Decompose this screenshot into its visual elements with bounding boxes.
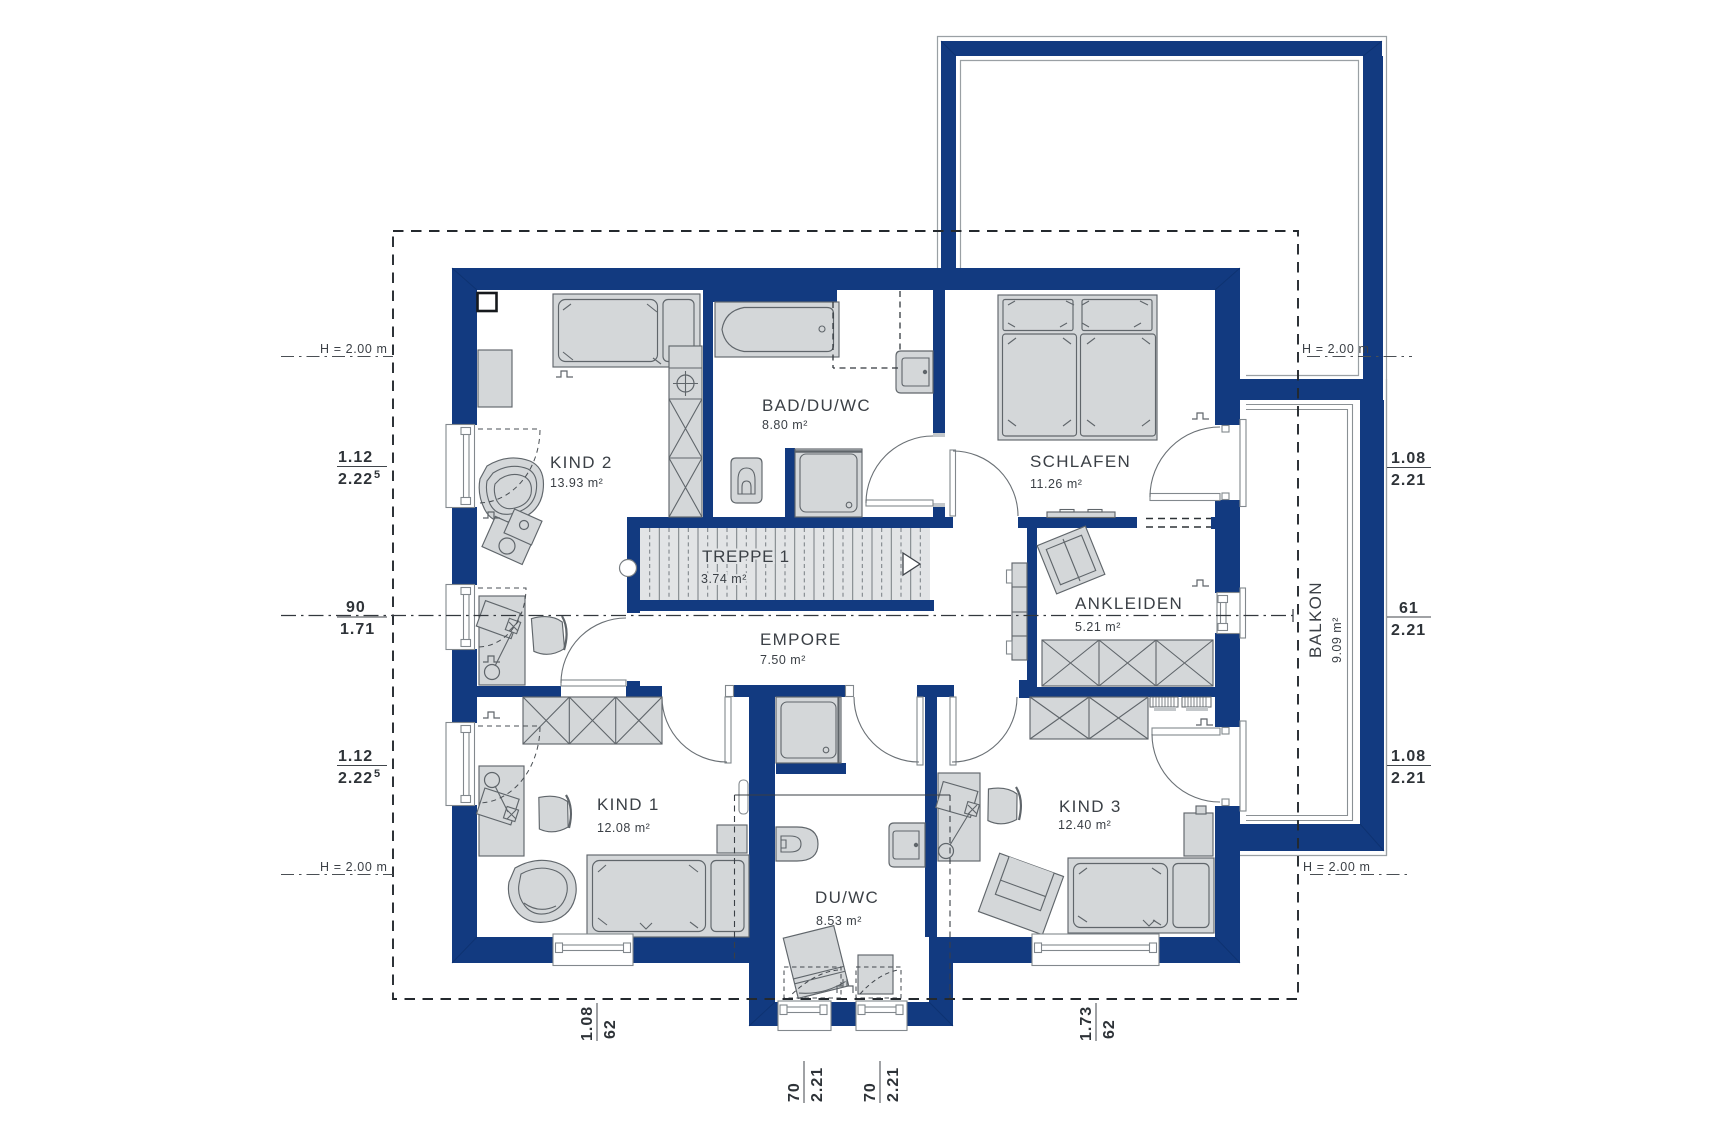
svg-text:13.93 m²: 13.93 m² bbox=[550, 476, 603, 490]
svg-text:KIND 1: KIND 1 bbox=[597, 795, 660, 814]
svg-text:KIND 2: KIND 2 bbox=[550, 453, 613, 472]
svg-text:1.08: 1.08 bbox=[1391, 450, 1426, 467]
svg-text:12.08 m²: 12.08 m² bbox=[597, 821, 650, 835]
svg-text:1.12: 1.12 bbox=[338, 449, 373, 466]
svg-text:70: 70 bbox=[862, 1082, 879, 1102]
svg-text:9.09 m²: 9.09 m² bbox=[1330, 617, 1344, 663]
svg-text:H = 2.00 m: H = 2.00 m bbox=[1303, 860, 1371, 874]
svg-text:H = 2.00 m: H = 2.00 m bbox=[320, 342, 388, 356]
svg-text:61: 61 bbox=[1399, 600, 1419, 617]
svg-text:2.22: 2.22 bbox=[338, 770, 373, 787]
svg-text:2.21: 2.21 bbox=[1391, 770, 1426, 787]
svg-text:8.53 m²: 8.53 m² bbox=[816, 914, 862, 928]
svg-text:5.21 m²: 5.21 m² bbox=[1075, 620, 1121, 634]
svg-text:1.73: 1.73 bbox=[1078, 1006, 1095, 1041]
svg-text:5: 5 bbox=[374, 469, 380, 481]
svg-text:H = 2.00 m: H = 2.00 m bbox=[1302, 342, 1370, 356]
svg-text:3.74 m²: 3.74 m² bbox=[701, 572, 747, 586]
svg-text:2.21: 2.21 bbox=[809, 1067, 826, 1102]
svg-text:1.08: 1.08 bbox=[1391, 748, 1426, 765]
svg-text:2.21: 2.21 bbox=[1391, 472, 1426, 489]
svg-text:SCHLAFEN: SCHLAFEN bbox=[1030, 452, 1131, 471]
svg-text:BALKON: BALKON bbox=[1306, 581, 1325, 658]
svg-text:DU/WC: DU/WC bbox=[815, 888, 879, 907]
svg-text:62: 62 bbox=[602, 1019, 619, 1039]
svg-text:BAD/DU/WC: BAD/DU/WC bbox=[762, 396, 871, 415]
svg-text:2.21: 2.21 bbox=[885, 1067, 902, 1102]
svg-text:KIND 3: KIND 3 bbox=[1059, 797, 1122, 816]
svg-text:H = 2.00 m: H = 2.00 m bbox=[320, 860, 388, 874]
svg-text:5: 5 bbox=[374, 768, 380, 780]
svg-text:11.26 m²: 11.26 m² bbox=[1030, 477, 1082, 491]
svg-text:8.80 m²: 8.80 m² bbox=[762, 418, 808, 432]
svg-text:2.21: 2.21 bbox=[1391, 622, 1426, 639]
svg-text:90: 90 bbox=[346, 599, 366, 616]
svg-text:7.50 m²: 7.50 m² bbox=[760, 653, 806, 667]
svg-text:70: 70 bbox=[786, 1082, 803, 1102]
svg-text:TREPPE 1: TREPPE 1 bbox=[702, 547, 790, 566]
svg-text:2.22: 2.22 bbox=[338, 471, 373, 488]
svg-text:EMPORE: EMPORE bbox=[760, 630, 841, 649]
svg-text:62: 62 bbox=[1101, 1019, 1118, 1039]
svg-text:1.12: 1.12 bbox=[338, 748, 373, 765]
svg-text:ANKLEIDEN: ANKLEIDEN bbox=[1075, 594, 1183, 613]
svg-text:1.71: 1.71 bbox=[340, 621, 375, 638]
svg-text:12.40 m²: 12.40 m² bbox=[1058, 818, 1111, 832]
svg-text:1.08: 1.08 bbox=[579, 1006, 596, 1041]
